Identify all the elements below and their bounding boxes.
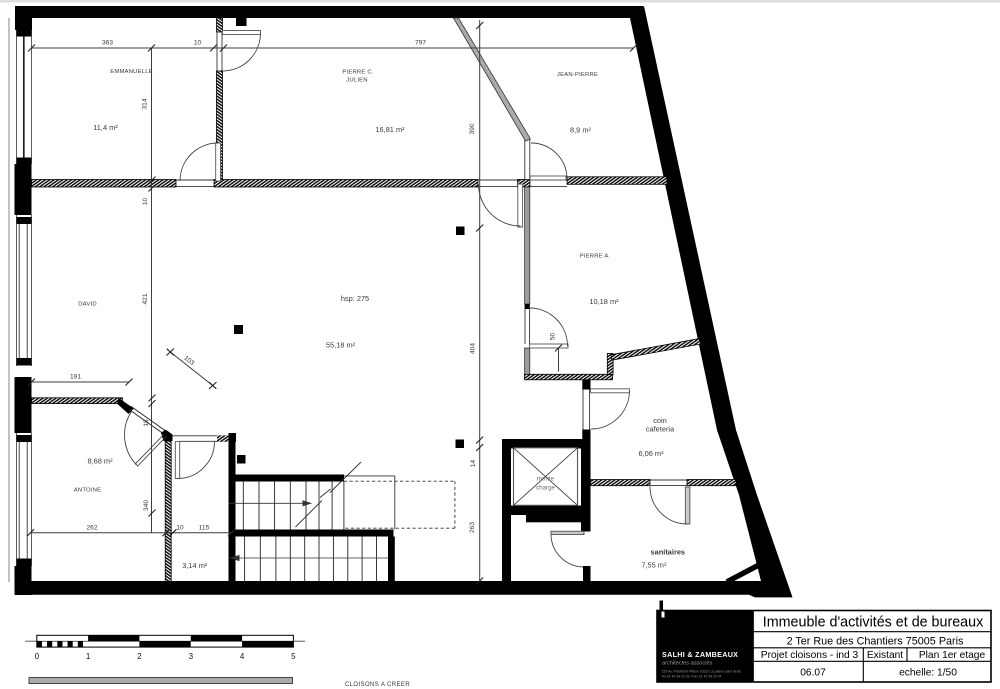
svg-text:55,18 m²: 55,18 m² [326,340,356,349]
svg-text:340: 340 [143,500,150,511]
svg-text:0: 0 [35,652,40,661]
svg-text:Projet cloisons - ind 3: Projet cloisons - ind 3 [761,650,859,661]
svg-text:1: 1 [86,652,91,661]
svg-text:50: 50 [550,333,557,341]
svg-text:10: 10 [142,198,149,206]
svg-text:monte: monte [537,476,555,483]
svg-text:10: 10 [194,40,202,47]
svg-text:hsp: 275: hsp: 275 [341,294,369,303]
svg-text:18: 18 [143,419,150,427]
svg-text:225 Av. Président Wilson 93210: 225 Av. Président Wilson 93210 La plaine… [662,670,742,674]
svg-text:3: 3 [189,652,194,661]
svg-text:5: 5 [291,652,296,661]
svg-text:Plan 1er etage: Plan 1er etage [919,650,986,661]
svg-text:Tel 01 49 98 22 03 / Fax 01 49: Tel 01 49 98 22 03 / Fax 01 49 98 22 04 [662,675,722,679]
svg-text:CLOISONS A CREER: CLOISONS A CREER [345,682,410,688]
svg-text:PIERRE A.: PIERRE A. [580,254,611,260]
svg-text:262: 262 [86,525,97,532]
svg-text:SALHI & ZAMBEAUX: SALHI & ZAMBEAUX [662,650,738,659]
svg-text:Existant: Existant [867,650,903,661]
svg-text:Immeuble d'activités et de bur: Immeuble d'activités et de bureaux [763,615,983,631]
svg-text:4: 4 [240,652,245,661]
svg-text:architectes associés: architectes associés [662,661,713,667]
svg-text:6,06 m²: 6,06 m² [638,449,664,458]
svg-text:797: 797 [415,40,426,47]
svg-text:charge: charge [536,485,555,492]
svg-text:191: 191 [70,374,81,381]
svg-text:3,14 m²: 3,14 m² [182,561,208,570]
svg-text:8,9 m²: 8,9 m² [570,126,591,135]
svg-text:JEAN-PIERRE: JEAN-PIERRE [557,72,598,78]
svg-text:EMMANUELLE: EMMANUELLE [110,69,153,75]
svg-text:115: 115 [199,525,210,532]
svg-text:263: 263 [469,522,476,533]
svg-text:sanitaires: sanitaires [651,547,686,556]
svg-text:echelle: 1/50: echelle: 1/50 [899,668,957,679]
svg-text:421: 421 [142,293,149,304]
svg-text:06.07: 06.07 [800,668,826,679]
svg-text:363: 363 [102,40,113,47]
svg-text:314: 314 [142,98,149,109]
svg-text:404: 404 [470,343,477,354]
svg-text:10: 10 [176,525,184,532]
svg-text:JULIEN: JULIEN [346,78,368,84]
svg-text:7,55 m²: 7,55 m² [641,561,667,570]
svg-text:11,4 m²: 11,4 m² [93,123,118,132]
svg-text:cafeteria: cafeteria [646,425,675,434]
svg-text:10,18 m²: 10,18 m² [589,297,619,306]
svg-text:DAVID: DAVID [78,302,97,308]
svg-text:2 Ter Rue des Chantiers 75005: 2 Ter Rue des Chantiers 75005 Paris [787,636,964,648]
svg-text:8,68 m²: 8,68 m² [87,457,113,466]
svg-text:2: 2 [137,652,142,661]
svg-text:ANTOINE: ANTOINE [74,488,101,494]
svg-text:16,81 m²: 16,81 m² [375,125,405,134]
svg-text:390: 390 [469,123,476,134]
svg-text:PIERRE C.: PIERRE C. [342,70,373,76]
svg-text:14: 14 [470,460,477,468]
